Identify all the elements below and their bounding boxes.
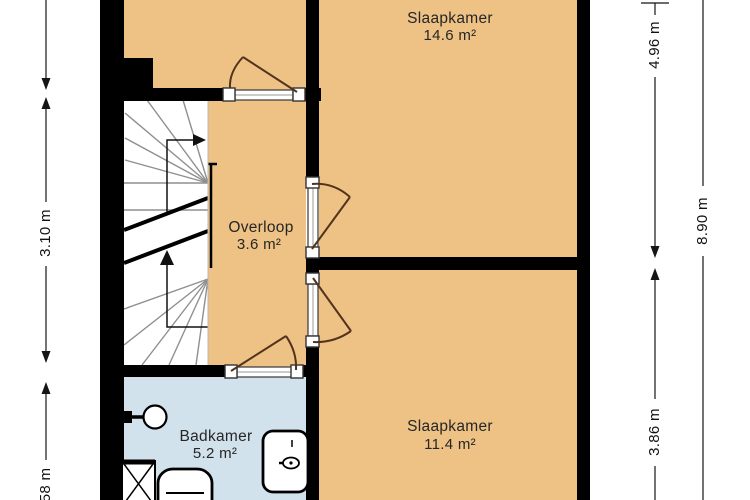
- door-jamb: [223, 88, 235, 101]
- wall-column-top: [306, 0, 319, 89]
- wall-right-outer: [577, 0, 590, 500]
- room-area-slaapkamer-1: 14.6 m²: [424, 27, 477, 44]
- dim-label-3-86: 3.86 m: [646, 408, 663, 456]
- dim-label-58: 58 m: [37, 468, 54, 500]
- sink-faucet-icon: [123, 411, 132, 423]
- wall-stairwell-bottom: [124, 365, 225, 377]
- room-area-slaapkamer-2: 11.4 m²: [424, 436, 476, 453]
- room-label-slaapkamer-2: Slaapkamer: [407, 418, 493, 435]
- dim-arrow-down: [42, 351, 51, 363]
- wall-badkamer-right-bridge: [301, 365, 319, 377]
- room-label-badkamer: Badkamer: [179, 428, 252, 445]
- dim-arrow-up: [651, 268, 660, 280]
- floorplan: 3.10 m 58 m 4.96 m 8.90 m 3.86 m Slaapka…: [0, 0, 750, 500]
- wall-stairtop: [124, 88, 223, 101]
- dim-arrow-down: [651, 246, 660, 258]
- wall-left-outer: [100, 0, 124, 500]
- door-jamb: [225, 365, 237, 378]
- room-area-overloop: 3.6 m²: [237, 236, 281, 253]
- sink-basin-icon: [144, 406, 167, 429]
- dim-arrow-up: [42, 97, 51, 109]
- dim-arrow-down: [42, 78, 51, 90]
- room-label-slaapkamer-1: Slaapkamer: [407, 10, 493, 27]
- wall-bedroom-divider: [306, 257, 577, 270]
- shower-drain-dot: [289, 461, 292, 464]
- dim-label-4-96: 4.96 m: [646, 21, 663, 69]
- dim-label-3-10: 3.10 m: [37, 209, 54, 257]
- wall-sillrow-right: [305, 88, 321, 101]
- door-jamb: [306, 177, 319, 188]
- room-area-badkamer: 5.2 m²: [193, 445, 237, 462]
- dim-label-8-90: 8.90 m: [694, 197, 711, 245]
- toilet-icon: [158, 469, 212, 500]
- wall-column-mid1: [306, 101, 319, 177]
- dim-arrow-up: [42, 382, 51, 394]
- floor-slaapkamer-2: [306, 258, 577, 500]
- room-label-overloop: Overloop: [228, 219, 293, 236]
- floorplan-canvas: 3.10 m 58 m 4.96 m 8.90 m 3.86 m Slaapka…: [0, 0, 750, 500]
